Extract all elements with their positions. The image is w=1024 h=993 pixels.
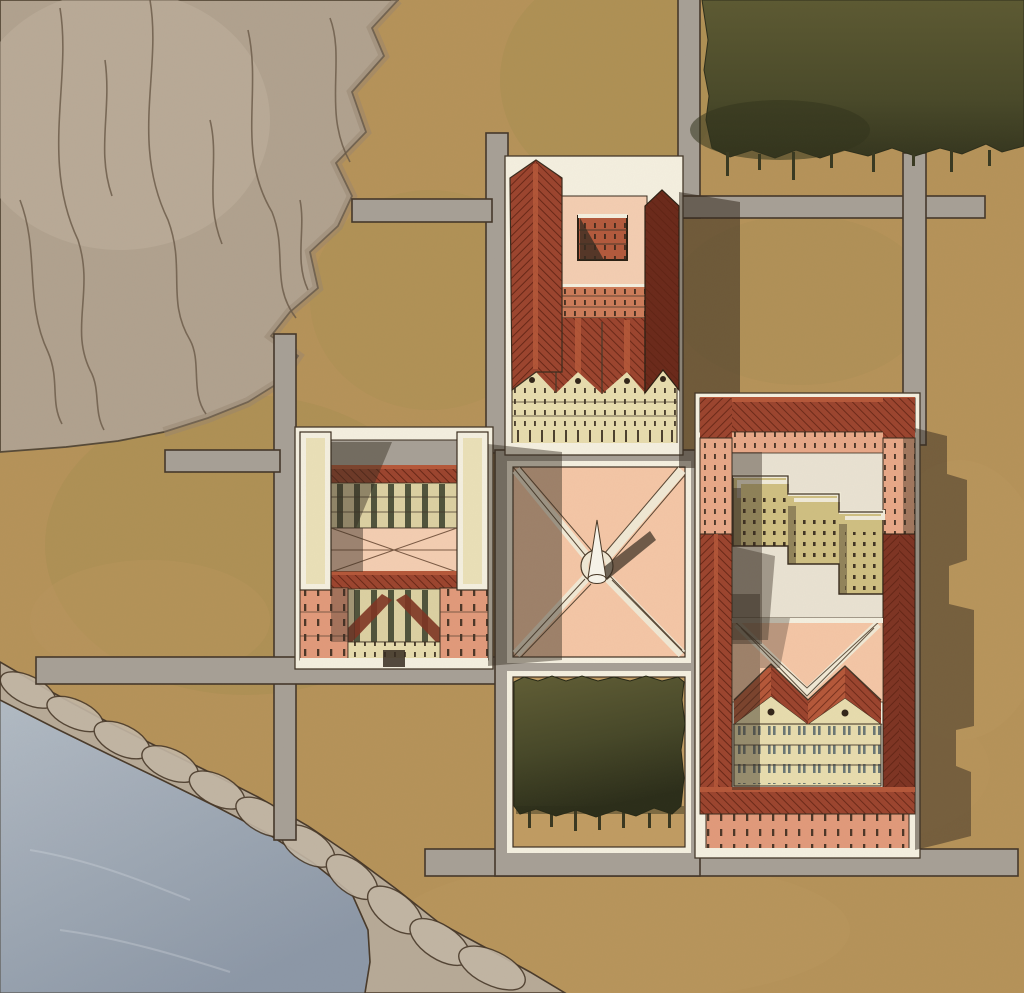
site-plan-illustration xyxy=(0,0,1024,993)
paper-grain-overlay xyxy=(0,0,1024,993)
